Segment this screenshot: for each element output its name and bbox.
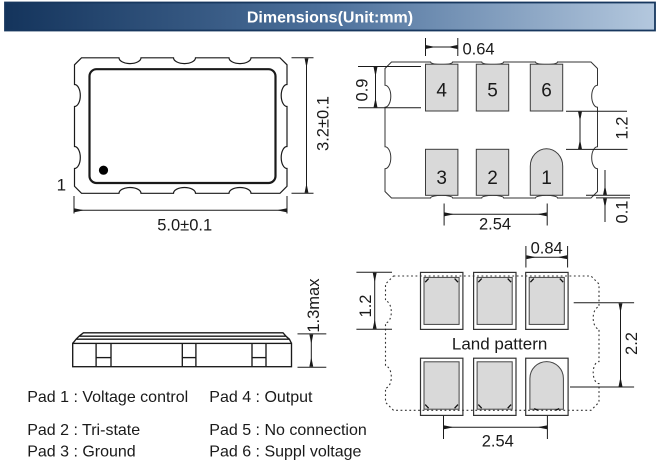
svg-text:2.54: 2.54 [482,433,514,451]
svg-text:5.0±0.1: 5.0±0.1 [157,217,212,235]
svg-text:1.2: 1.2 [613,117,631,140]
svg-text:2.54: 2.54 [479,216,511,234]
svg-text:2: 2 [487,168,498,189]
svg-text:Pad 3 : Ground: Pad 3 : Ground [27,443,136,460]
svg-text:3.2±0.1: 3.2±0.1 [314,96,332,151]
svg-text:0.64: 0.64 [463,41,495,59]
svg-text:3: 3 [436,168,447,189]
svg-text:1.3max: 1.3max [305,278,323,333]
svg-text:0.1: 0.1 [613,201,631,224]
svg-text:1.2: 1.2 [357,295,375,318]
svg-text:4: 4 [436,80,447,101]
svg-text:6: 6 [541,80,552,101]
svg-text:0.84: 0.84 [531,239,563,257]
svg-text:0.9: 0.9 [353,79,371,102]
svg-text:1: 1 [541,168,552,189]
svg-text:1: 1 [57,175,66,194]
svg-text:5: 5 [487,80,498,101]
svg-text:Pad 2 : Tri-state: Pad 2 : Tri-state [27,422,140,439]
svg-text:2.2: 2.2 [623,332,641,355]
svg-text:Pad 1 : Voltage control: Pad 1 : Voltage control [27,389,188,406]
svg-text:Pad 6 : Suppl voltage: Pad 6 : Suppl voltage [209,443,361,460]
svg-text:Land pattern: Land pattern [452,335,547,354]
svg-text:Pad 5 : No connection: Pad 5 : No connection [209,422,366,439]
svg-text:Pad 4 : Output: Pad 4 : Output [209,389,313,406]
svg-text:Dimensions(Unit:mm): Dimensions(Unit:mm) [247,10,413,27]
